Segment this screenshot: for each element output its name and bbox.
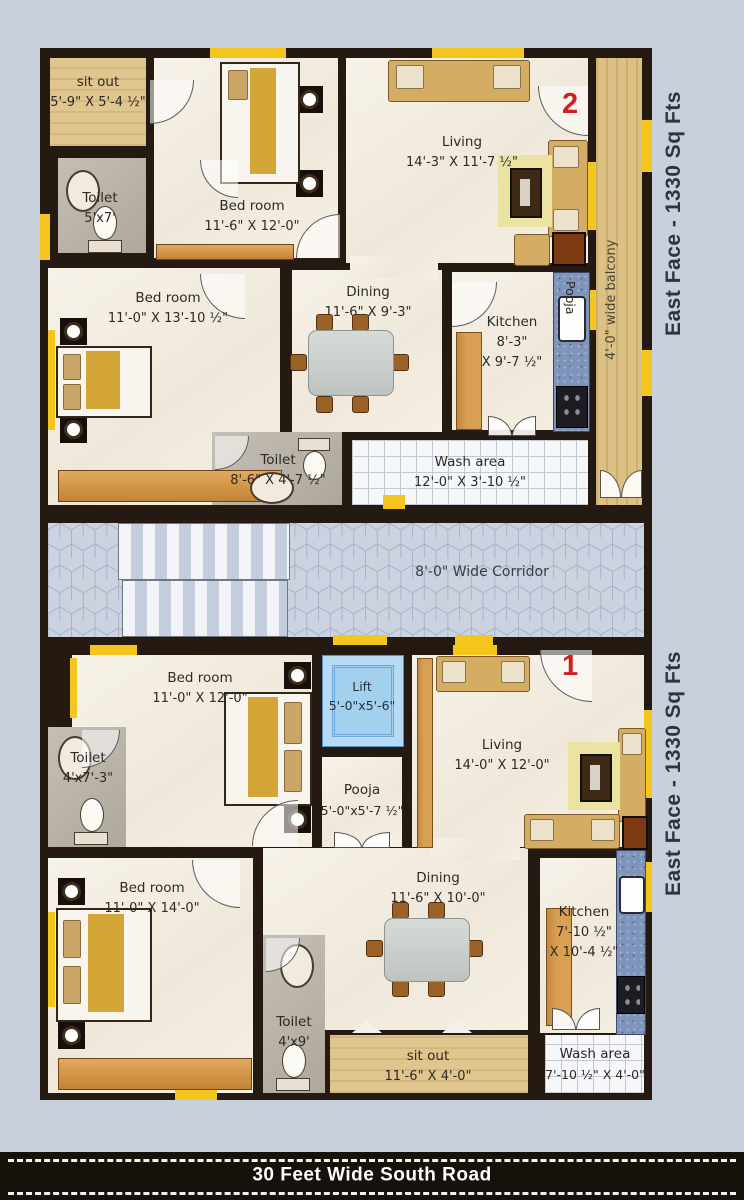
opening-living-dining-unit1 — [430, 838, 520, 860]
room-label: Living 14'-0" X 12'-0" — [454, 735, 549, 776]
dining-table-icon — [384, 918, 470, 982]
room-dims: X 10'-4 ½" — [550, 943, 619, 963]
nightstand-icon — [296, 86, 323, 113]
wc-icon — [74, 832, 108, 845]
chair-icon — [392, 980, 409, 997]
room-label: Kitchen 8'-3" X 9'-7 ½" — [482, 312, 543, 373]
window-marker — [642, 350, 652, 396]
room-name: Pooja — [321, 780, 404, 801]
room-dims: X 9'-7 ½" — [482, 353, 543, 373]
bed-icon — [224, 692, 312, 806]
wc-icon — [80, 798, 104, 832]
tv-unit-icon — [510, 168, 542, 218]
room-label: Pooja 5'-0"x5'-7 ½" — [321, 780, 404, 820]
room-dims: 4'x9' — [276, 1033, 311, 1053]
chair-icon — [392, 354, 409, 371]
window-marker — [383, 495, 405, 509]
double-door-icon — [552, 1008, 600, 1030]
room-name: Kitchen — [482, 312, 543, 333]
nightstand-icon — [284, 662, 311, 689]
room-dims: 7'-10 ½" X 4'-0" — [545, 1065, 645, 1084]
wardrobe — [58, 1058, 252, 1090]
room-dims: 11'-0" X 12'-0" — [152, 689, 247, 709]
nightstand-icon — [60, 416, 87, 443]
room-name: Living — [406, 132, 518, 153]
chair-icon — [428, 902, 445, 919]
nightstand-icon — [296, 170, 323, 197]
room-name: Toilet — [276, 1012, 311, 1033]
room-label: Toilet 4'x9' — [276, 1012, 311, 1053]
east-face-label-top: East Face - 1330 Sq Fts — [662, 85, 714, 343]
room-dims: 11'-6" X 12'-0" — [204, 217, 299, 237]
room-dims: 8'-6" X 4'-7 ½" — [230, 471, 325, 491]
window-marker — [455, 635, 493, 645]
room-label: Bed room 11'-0" X 12'-0" — [152, 668, 247, 709]
double-door-icon — [600, 470, 642, 498]
room-dims: 12'-0" X 3'-10 ½" — [414, 473, 526, 493]
room-name: Dining — [390, 868, 485, 889]
room-name: Bed room — [104, 878, 199, 899]
balcony-label: 4'-0" wide balcony — [604, 205, 634, 395]
window-marker — [90, 645, 137, 655]
chair-icon — [290, 354, 307, 371]
nightstand-icon — [58, 878, 85, 905]
sink-icon — [619, 876, 645, 914]
room-name: Toilet — [82, 188, 117, 209]
side-table-icon — [514, 234, 550, 266]
room-label: Toilet 5'x7' — [82, 188, 117, 229]
room-dims: 5'-0"x5'-6" — [329, 697, 396, 716]
room-label: Kitchen 7'-10 ½" X 10'-4 ½" — [550, 902, 619, 963]
opening-living-dining-unit2 — [350, 256, 438, 278]
room-label: sit out 11'-6" X 4'-0" — [384, 1046, 471, 1087]
stove-icon — [617, 976, 645, 1014]
room-name: Dining — [324, 282, 411, 303]
floor-plan-canvas: { "side": { "top_label": "East Face - 13… — [0, 0, 744, 1200]
room-label: Living 14'-3" X 11'-7 ½" — [406, 132, 518, 173]
road-lane-line — [8, 1192, 736, 1195]
sofa-icon — [618, 728, 646, 822]
window-marker — [40, 214, 50, 260]
room-dims: 5'x7' — [82, 209, 117, 229]
room-dims: 11'-0" X 14'-0" — [104, 899, 199, 919]
stairs-lower-flight — [122, 580, 288, 637]
chair-icon — [428, 980, 445, 997]
room-dims: 11'-0" X 13'-10 ½" — [108, 309, 228, 329]
wc-icon — [276, 1078, 310, 1091]
south-road-band: 30 Feet Wide South Road — [0, 1152, 744, 1200]
wall-opening-icon — [442, 1020, 472, 1033]
room-label: Bed room 11'-0" X 14'-0" — [104, 878, 199, 919]
room-dims: 11'-6" X 4'-0" — [384, 1067, 471, 1087]
room-name: sit out — [384, 1046, 471, 1067]
unit1-marker: 1 — [562, 650, 578, 683]
unit2-marker: 2 — [562, 88, 578, 121]
window-marker — [333, 635, 387, 645]
room-label: Toilet 8'-6" X 4'-7 ½" — [230, 450, 325, 491]
room-dims: 14'-3" X 11'-7 ½" — [406, 153, 518, 173]
sofa-icon — [548, 140, 588, 237]
room-label: sit out 5'-9" X 5'-4 ½" — [50, 72, 145, 113]
window-marker — [642, 120, 652, 172]
room-name: sit out — [50, 72, 145, 93]
room-label: Wash area 12'-0" X 3'-10 ½" — [414, 452, 526, 493]
window-marker — [210, 48, 286, 58]
east-face-label-bottom: East Face - 1330 Sq Fts — [662, 645, 714, 903]
room-label: Wash area 7'-10 ½" X 4'-0" — [545, 1044, 645, 1084]
road-label: 30 Feet Wide South Road — [252, 1165, 491, 1187]
wardrobe — [156, 244, 294, 260]
chair-icon — [352, 314, 369, 331]
room-dims: 14'-0" X 12'-0" — [454, 756, 549, 776]
double-door-icon — [488, 416, 536, 436]
chair-icon — [316, 396, 333, 413]
room-name: Wash area — [545, 1044, 645, 1065]
chair-icon — [352, 396, 369, 413]
kitchen-cabinet — [456, 332, 482, 430]
dining-table-icon — [308, 330, 394, 396]
double-door-icon — [334, 832, 390, 848]
room-label-pooja-unit2: Pooja — [556, 266, 578, 330]
sofa-icon — [388, 60, 530, 102]
room-dims: 4'x7'-3" — [63, 769, 113, 789]
room-name: Kitchen — [550, 902, 619, 923]
room-dims: 8'-3" — [482, 333, 543, 353]
window-marker — [48, 912, 55, 1007]
stairs-upper-flight — [118, 523, 290, 580]
window-marker — [432, 48, 524, 58]
room-name: Wash area — [414, 452, 526, 473]
road-lane-line — [8, 1159, 736, 1162]
bed-icon — [56, 908, 152, 1022]
room-label: Bed room 11'-0" X 13'-10 ½" — [108, 288, 228, 329]
room-name: Bed room — [204, 196, 299, 217]
wc-icon — [88, 240, 122, 253]
nightstand-icon — [60, 318, 87, 345]
room-name: Bed room — [152, 668, 247, 689]
room-dims: 5'-9" X 5'-4 ½" — [50, 93, 145, 113]
room-name: Bed room — [108, 288, 228, 309]
chair-icon — [392, 902, 409, 919]
window-marker — [453, 645, 497, 655]
room-label: Bed room 11'-6" X 12'-0" — [204, 196, 299, 237]
corridor-label: 8'-0" Wide Corridor — [415, 562, 549, 584]
room-name: Toilet — [63, 748, 113, 769]
bed-icon — [56, 346, 152, 418]
stove-icon — [556, 386, 588, 428]
tv-unit-icon — [580, 754, 612, 802]
room-dims: 7'-10 ½" — [550, 923, 619, 943]
cabinet-box-icon — [622, 816, 648, 850]
wall-opening-icon — [352, 1020, 382, 1033]
sofa-icon — [436, 656, 530, 692]
window-marker — [588, 162, 596, 230]
wardrobe — [417, 658, 433, 848]
room-dims: 5'-0"x5'-7 ½" — [321, 801, 404, 820]
window-marker — [70, 658, 77, 718]
room-label: Toilet 4'x7'-3" — [63, 748, 113, 789]
sofa-icon — [524, 814, 620, 849]
window-marker — [48, 330, 55, 430]
cabinet-box-icon — [552, 232, 586, 266]
room-name: Living — [454, 735, 549, 756]
room-label: Lift 5'-0"x5'-6" — [329, 678, 396, 716]
nightstand-icon — [58, 1022, 85, 1049]
room-name: Toilet — [230, 450, 325, 471]
room-name: Lift — [329, 678, 396, 697]
chair-icon — [366, 940, 383, 957]
window-marker — [175, 1090, 217, 1100]
chair-icon — [316, 314, 333, 331]
